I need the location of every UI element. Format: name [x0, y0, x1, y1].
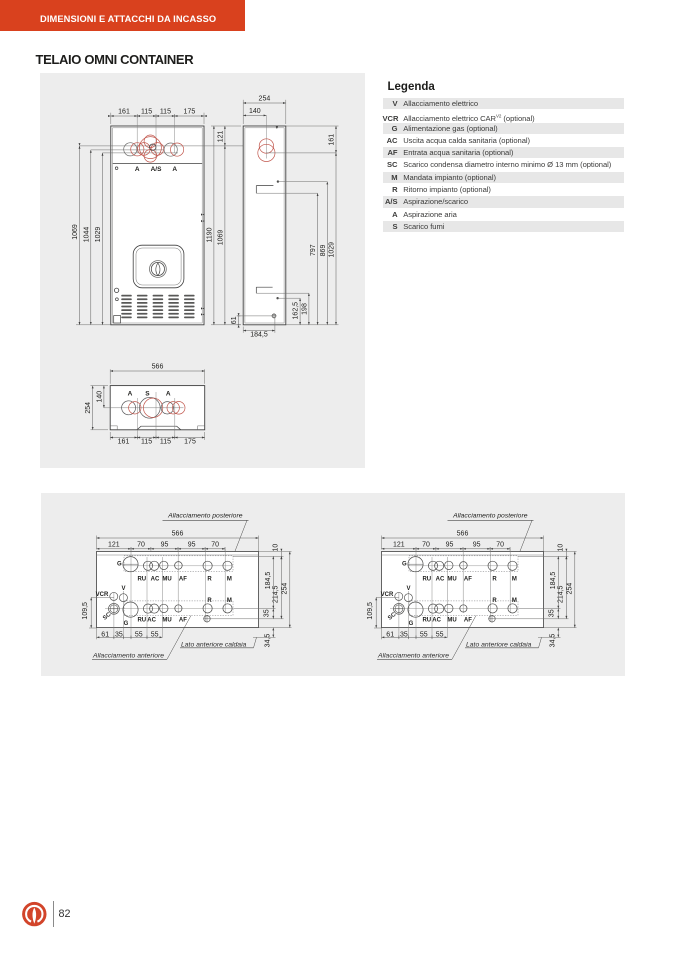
- svg-text:S: S: [145, 390, 150, 397]
- svg-text:A: A: [135, 166, 140, 173]
- svg-text:1069: 1069: [218, 230, 225, 246]
- svg-text:1190: 1190: [207, 227, 214, 242]
- svg-text:VCR: VCR: [96, 592, 109, 598]
- svg-text:1044: 1044: [84, 227, 91, 243]
- svg-text:70: 70: [211, 541, 219, 548]
- svg-text:A: A: [128, 390, 133, 397]
- svg-text:MU: MU: [162, 618, 171, 624]
- svg-text:175: 175: [184, 438, 196, 445]
- svg-text:214,5: 214,5: [273, 585, 280, 603]
- svg-text:61: 61: [231, 316, 238, 324]
- svg-text:Allacciamento posteriore: Allacciamento posteriore: [167, 513, 243, 520]
- svg-text:RU: RU: [137, 618, 146, 624]
- svg-text:34,5: 34,5: [265, 634, 272, 648]
- svg-text:175: 175: [184, 109, 196, 116]
- svg-text:55: 55: [135, 631, 143, 638]
- svg-text:1029: 1029: [329, 242, 336, 258]
- svg-text:115: 115: [160, 438, 171, 445]
- svg-text:1029: 1029: [95, 227, 102, 243]
- svg-text:254: 254: [259, 96, 271, 103]
- svg-text:566: 566: [172, 531, 184, 538]
- svg-text:254: 254: [85, 402, 92, 414]
- svg-text:140: 140: [249, 108, 261, 115]
- svg-text:121: 121: [218, 130, 225, 142]
- svg-text:115: 115: [141, 438, 152, 445]
- svg-text:RU: RU: [137, 576, 146, 582]
- svg-text:161: 161: [118, 109, 130, 116]
- svg-text:121: 121: [108, 541, 120, 548]
- svg-text:254: 254: [281, 583, 288, 595]
- svg-text:162,5: 162,5: [293, 302, 300, 320]
- svg-text:95: 95: [161, 541, 169, 548]
- svg-text:70: 70: [137, 541, 145, 548]
- svg-text:61: 61: [101, 631, 109, 638]
- svg-text:797: 797: [310, 244, 317, 256]
- svg-text:10: 10: [273, 544, 280, 552]
- svg-text:198: 198: [301, 303, 308, 315]
- svg-text:AC: AC: [147, 618, 156, 624]
- svg-text:G: G: [117, 562, 122, 568]
- svg-text:G: G: [124, 621, 129, 627]
- svg-text:M: M: [227, 598, 232, 604]
- svg-text:566: 566: [152, 364, 164, 371]
- svg-text:1069: 1069: [72, 224, 79, 240]
- svg-text:184,5: 184,5: [250, 332, 268, 339]
- svg-text:A/S: A/S: [151, 166, 163, 173]
- svg-text:869: 869: [320, 245, 327, 257]
- svg-text:AC: AC: [151, 576, 160, 582]
- svg-text:MU: MU: [162, 576, 171, 582]
- svg-text:AF: AF: [179, 576, 187, 582]
- svg-text:Allacciamento anteriore: Allacciamento anteriore: [92, 653, 164, 660]
- svg-text:AF: AF: [179, 618, 187, 624]
- svg-text:161: 161: [118, 438, 130, 445]
- svg-text:184,5: 184,5: [265, 572, 272, 590]
- svg-text:95: 95: [188, 541, 196, 548]
- svg-text:140: 140: [97, 391, 104, 403]
- svg-text:35: 35: [263, 609, 270, 617]
- svg-text:109,5: 109,5: [82, 602, 89, 620]
- svg-text:161: 161: [329, 134, 336, 146]
- svg-text:A: A: [172, 166, 177, 173]
- svg-text:M: M: [227, 576, 232, 582]
- svg-text:115: 115: [160, 109, 171, 116]
- svg-text:R: R: [207, 576, 212, 582]
- svg-text:R: R: [207, 598, 212, 604]
- svg-text:55: 55: [151, 631, 159, 638]
- svg-text:115: 115: [141, 109, 152, 116]
- svg-text:V: V: [121, 586, 125, 592]
- svg-text:Lato anteriore caldaia: Lato anteriore caldaia: [181, 641, 247, 648]
- svg-text:A: A: [166, 390, 171, 397]
- svg-text:35: 35: [115, 631, 123, 638]
